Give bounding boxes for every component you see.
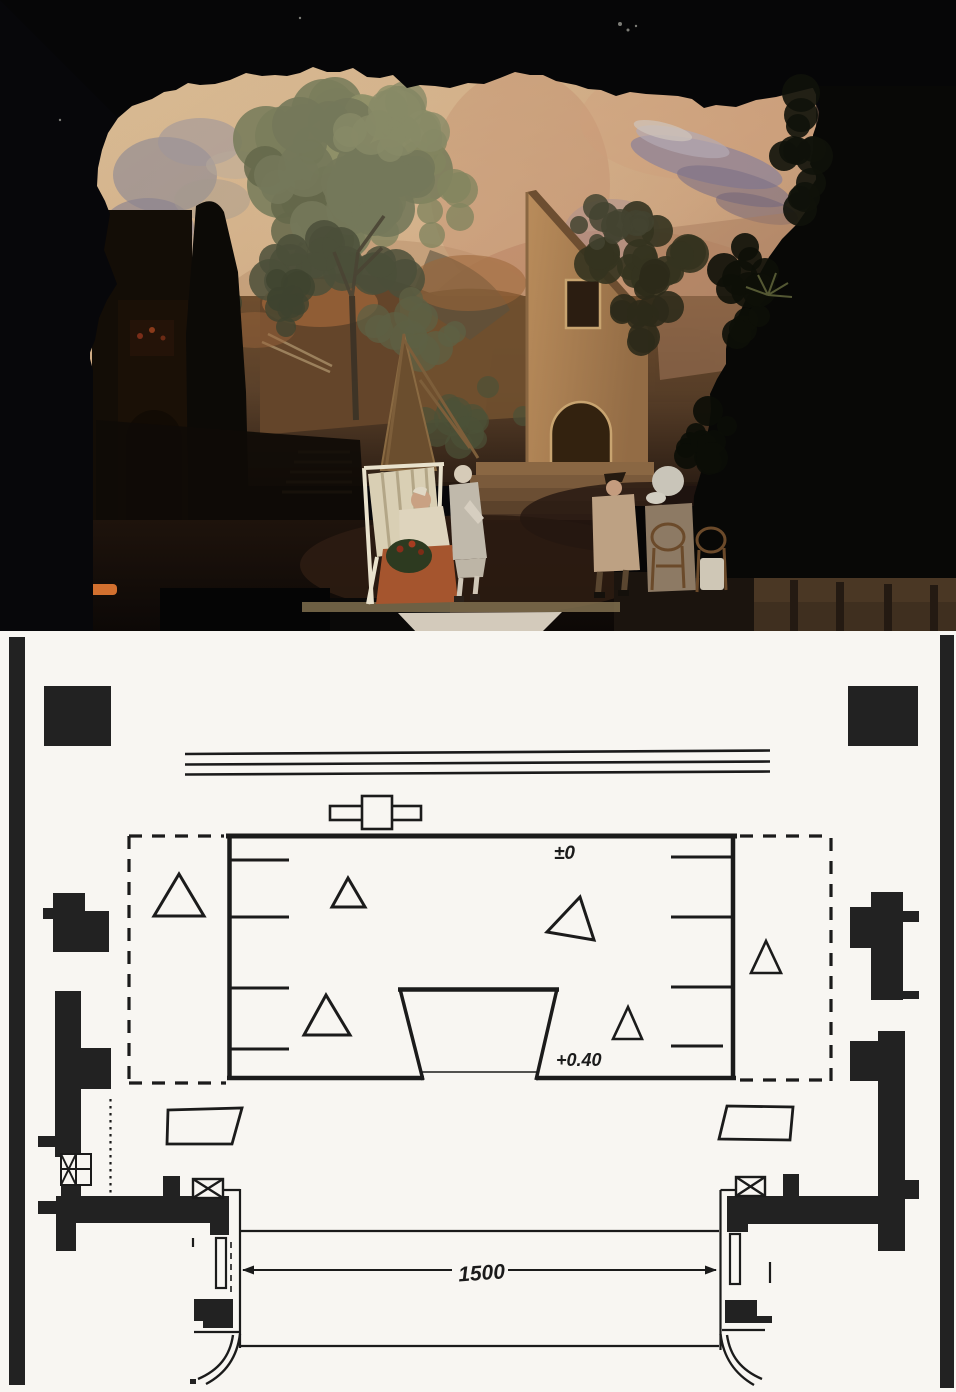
svg-text:1500: 1500 — [457, 1260, 506, 1286]
svg-text:+0.40: +0.40 — [556, 1050, 602, 1070]
svg-text:±0: ±0 — [554, 843, 575, 864]
